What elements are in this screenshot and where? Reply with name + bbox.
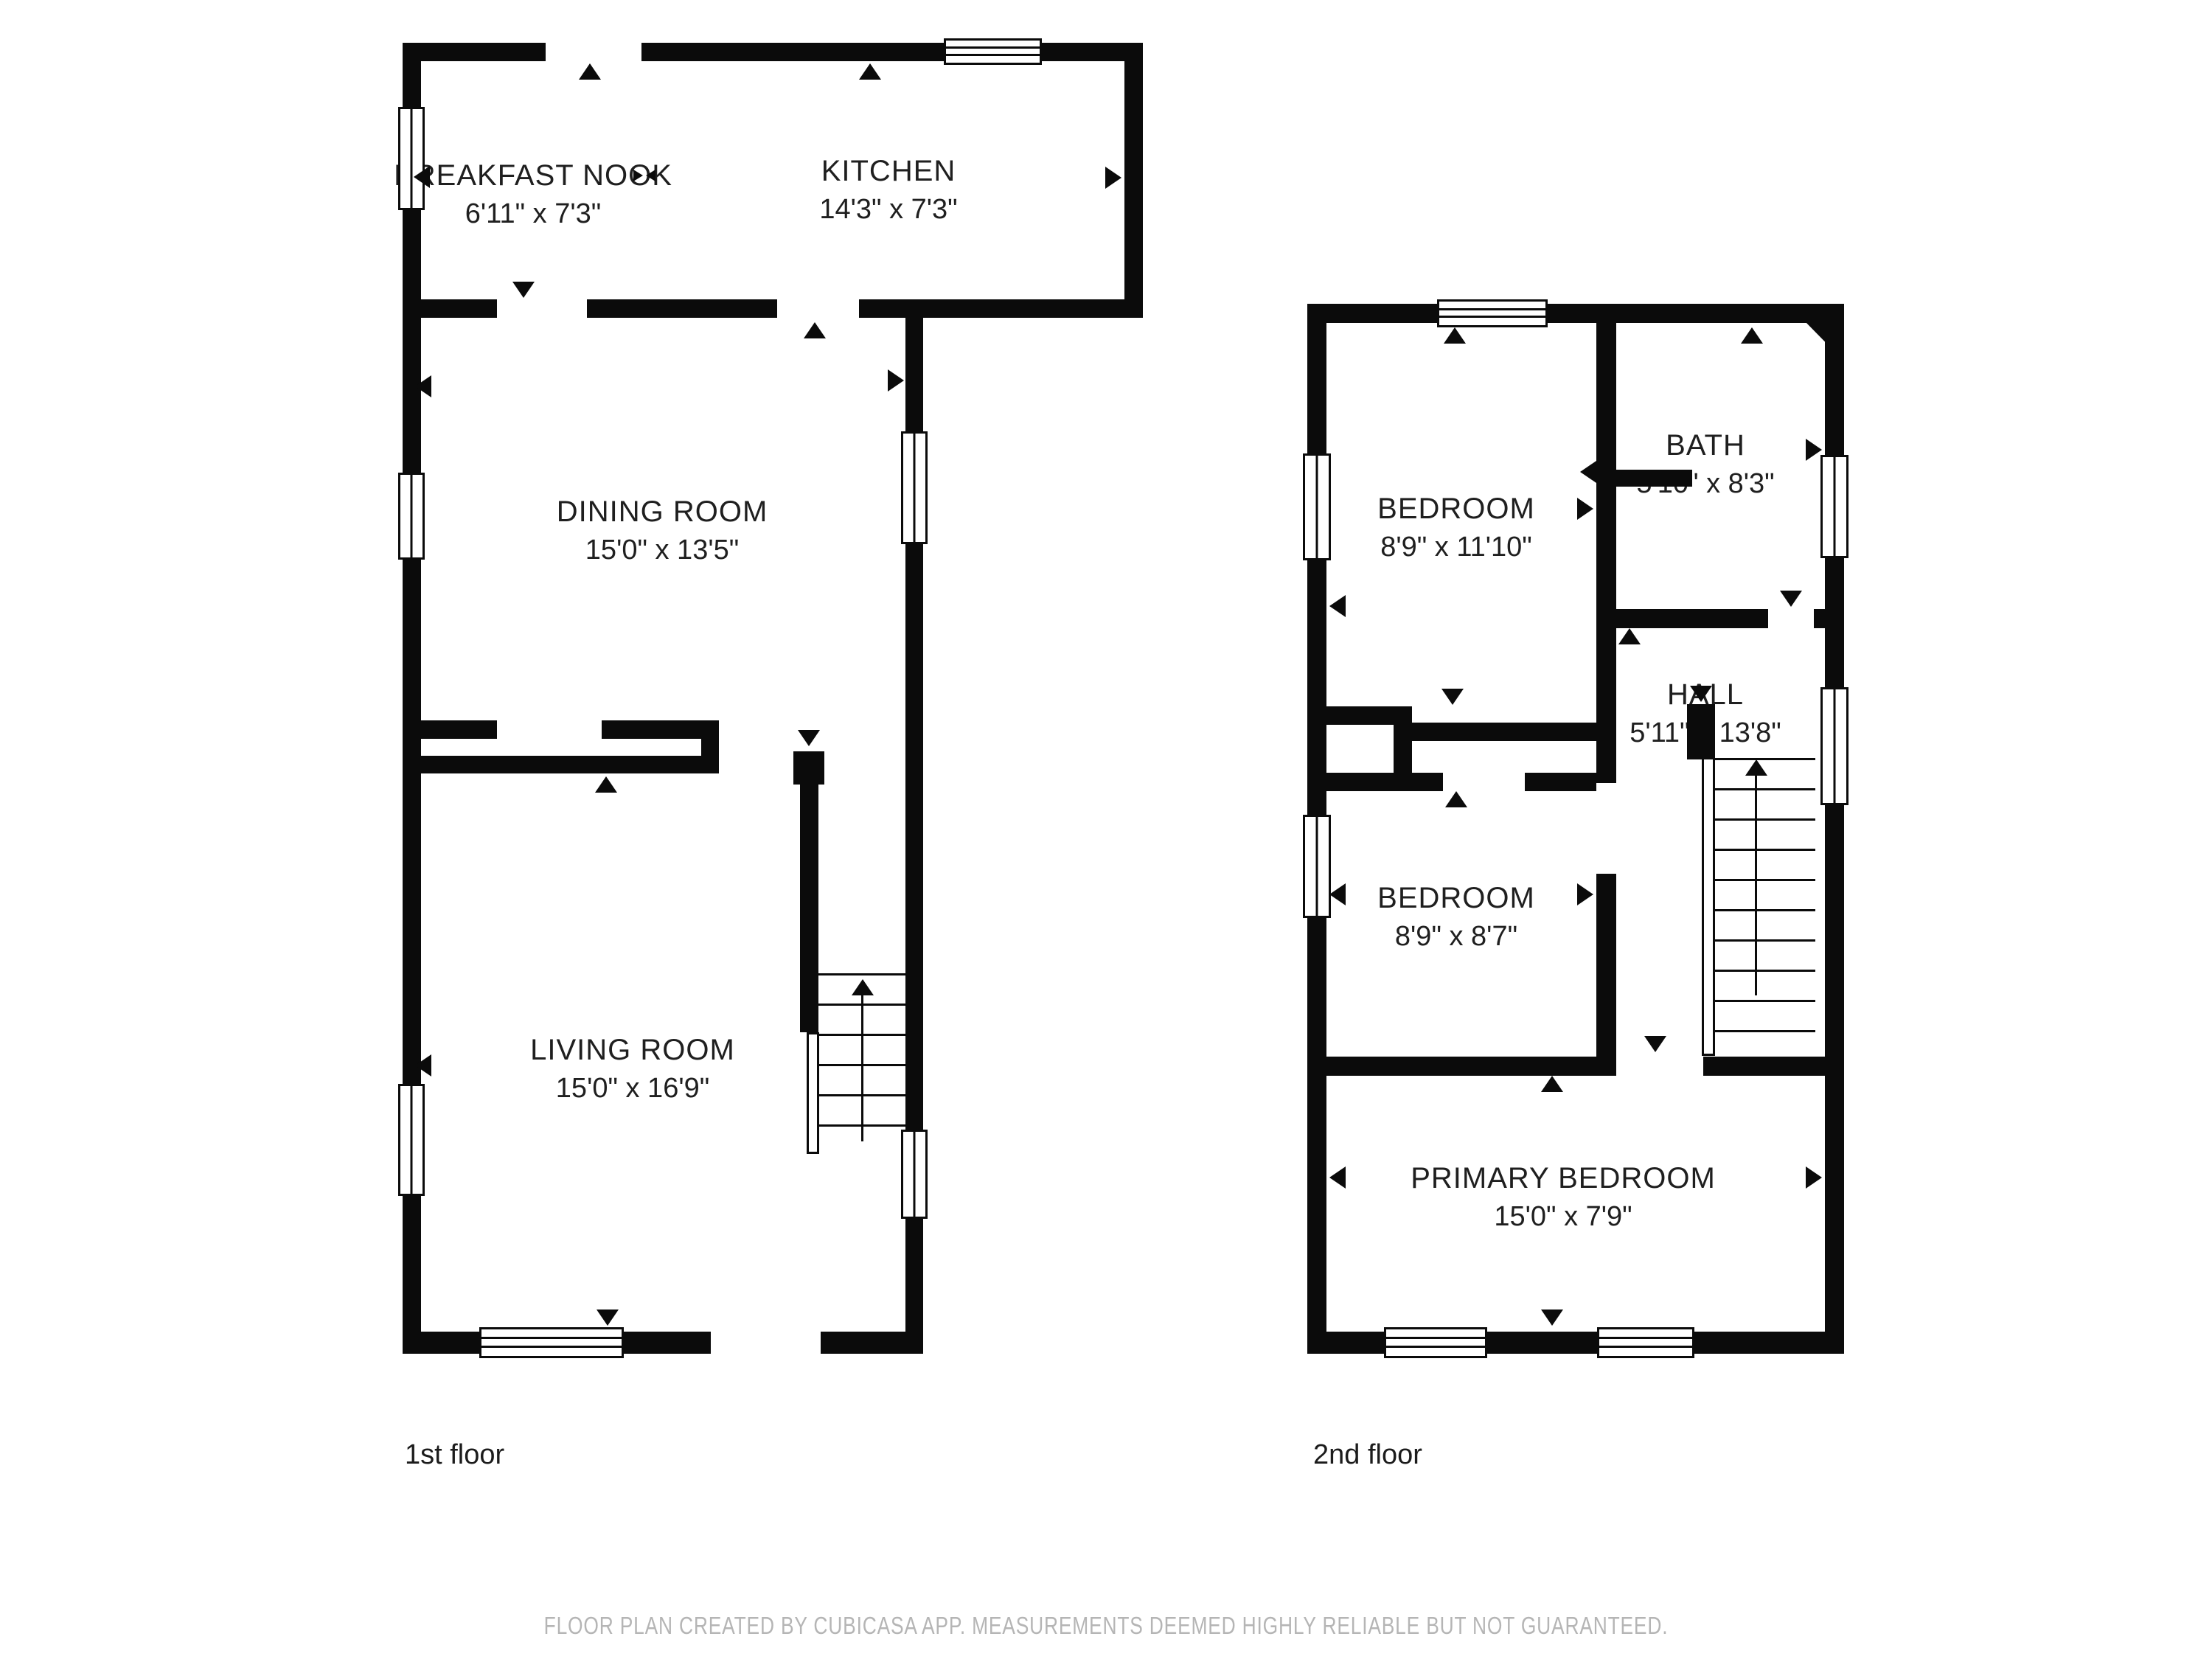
window [1437,299,1548,327]
wall [1545,304,1844,323]
room-dims: 15'0" x 16'9" [485,1069,780,1107]
floor-label-1st: 1st floor [405,1439,504,1471]
window [1384,1327,1487,1358]
stair-direction-arrow [1755,774,1757,995]
stair-stringer [807,1032,819,1154]
window [1303,815,1331,918]
door-marker-icon [1806,1166,1822,1189]
room-dims: 14'3" x 7'3" [741,190,1036,229]
room-dims: 8'9" x 11'10" [1309,528,1604,566]
wall [410,720,497,739]
window [398,1084,425,1196]
door-marker-icon [1541,1310,1563,1326]
door-marker-icon [633,170,643,181]
wall [1596,323,1616,783]
door-marker-icon [579,63,601,80]
room-name: BEDROOM [1309,879,1604,917]
door-marker-icon [1577,498,1593,520]
wall [403,1332,479,1354]
room-name: PRIMARY BEDROOM [1379,1159,1747,1197]
wall [587,299,777,318]
door-marker-icon [1441,689,1464,705]
room-dims: 8'9" x 8'7" [1309,917,1604,956]
door-marker-icon [798,730,820,746]
room-label-bedroom-2: BEDROOM 8'9" x 8'7" [1309,879,1604,956]
window [901,431,928,544]
wall [641,43,946,61]
room-dims: 15'0" x 13'5" [515,531,810,569]
stair-arrow-head-icon [852,979,874,995]
wall [1596,609,1768,628]
wall [1394,706,1412,774]
wall [1525,773,1596,791]
door-marker-icon [1780,591,1802,607]
window [944,38,1042,65]
wall [1326,706,1394,725]
door-marker-icon [512,282,535,298]
wall [410,756,719,773]
room-name: LIVING ROOM [485,1031,780,1069]
stair-arrow-head-icon [1745,759,1767,776]
wall [403,299,497,318]
room-label-dining-room: DINING ROOM 15'0" x 13'5" [515,493,810,569]
room-name: KITCHEN [741,152,1036,190]
wall [1412,723,1596,741]
door-marker-icon [597,1310,619,1326]
door-marker-icon [415,1054,431,1077]
door-marker-icon [804,322,826,338]
wall [1703,1057,1825,1076]
wall [1307,304,1439,323]
window [1820,687,1848,805]
door-marker-icon [1105,167,1121,189]
wall [1596,874,1616,1076]
window [1597,1327,1694,1358]
wall [1694,1332,1844,1354]
wall [1326,773,1443,791]
window [479,1327,624,1358]
door-marker-icon [415,375,431,397]
stair-direction-arrow [861,994,863,1141]
door-marker-icon [1329,595,1346,617]
wall [403,43,546,61]
door-marker-icon [414,166,430,188]
wall [1326,1057,1615,1076]
wall [1616,470,1692,487]
room-label-breakfast-nook: BREAKFAST NOOK 6'11" x 7'3" [386,156,681,233]
wall [623,1332,711,1354]
door-marker-icon [646,170,655,181]
window [901,1130,928,1219]
footer-disclaimer: FLOOR PLAN CREATED BY CUBICASA APP. MEAS… [221,1612,1991,1640]
door-marker-icon [1445,791,1467,807]
door-marker-icon [1329,883,1346,905]
wall [701,720,719,773]
staircase [1715,758,1815,1056]
room-dims: 15'0" x 7'9" [1379,1197,1747,1236]
door-marker-icon [1541,1076,1563,1092]
door-marker-icon [1444,327,1466,344]
wall [800,751,818,1032]
door-marker-icon [1618,628,1641,644]
wall [821,1332,923,1354]
door-marker-icon [1577,883,1593,905]
door-marker-icon [888,369,904,392]
door-marker-icon [1690,686,1712,702]
window [1303,453,1331,560]
room-label-kitchen: KITCHEN 14'3" x 7'3" [741,152,1036,229]
window [1820,455,1848,558]
stair-stringer [1702,743,1715,1056]
room-label-primary-bedroom: PRIMARY BEDROOM 15'0" x 7'9" [1379,1159,1747,1236]
wall [1814,609,1844,628]
wall-corner-chamfer [1806,323,1844,361]
room-label-living-room: LIVING ROOM 15'0" x 16'9" [485,1031,780,1107]
wall [1307,1332,1384,1354]
room-name: DINING ROOM [515,493,810,531]
floor-plan-canvas: BREAKFAST NOOK 6'11" x 7'3" KITCHEN 14'3… [0,0,2212,1659]
window [398,473,425,560]
floor-label-2nd: 2nd floor [1313,1439,1422,1471]
wall [1124,43,1143,318]
wall [1487,1332,1597,1354]
door-marker-icon [1741,327,1763,344]
window [398,107,425,210]
door-marker-icon [1580,461,1596,483]
wall [1687,704,1715,759]
door-marker-icon [859,63,881,80]
door-marker-icon [1806,439,1822,461]
door-marker-icon [595,776,617,793]
room-dims: 6'11" x 7'3" [386,195,681,233]
door-marker-icon [1329,1166,1346,1189]
wall [859,299,1143,318]
door-marker-icon [1644,1036,1666,1052]
